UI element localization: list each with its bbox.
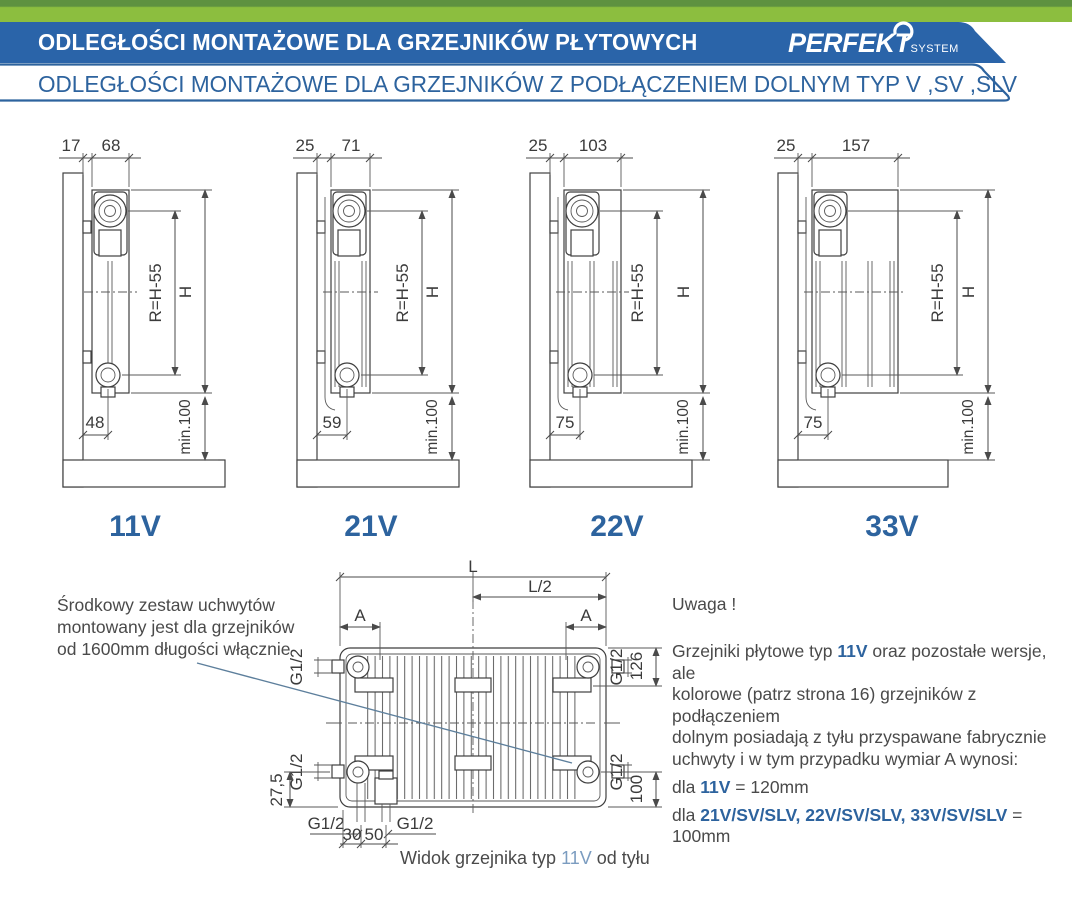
svg-text:25: 25 xyxy=(529,136,548,155)
radiator-21v xyxy=(323,190,378,410)
svg-text:min.100: min.100 xyxy=(675,399,692,455)
main-title-banner: ODLEGŁOŚCI MONTAŻOWE DLA GRZEJNIKÓW PŁYT… xyxy=(0,22,1020,63)
svg-text:min.100: min.100 xyxy=(177,399,194,455)
radiator-33v xyxy=(804,190,906,410)
svg-text:75: 75 xyxy=(804,413,823,432)
note-dim-a-others: dla 21V/SV/SLV, 22V/SV/SLV, 33V/SV/SLV =… xyxy=(672,805,1072,847)
note-left-line1: Środkowy zestaw uchwytów xyxy=(57,594,294,616)
svg-text:R=H-55: R=H-55 xyxy=(628,263,647,322)
type-label-21v: 21V xyxy=(316,510,426,544)
note-heading: Uwaga ! xyxy=(672,594,1072,615)
type-label-22v: 22V xyxy=(562,510,672,544)
svg-text:25: 25 xyxy=(296,136,315,155)
note-left-line2: montowany jest dla grzejników xyxy=(57,616,294,638)
note-dim-a-11v: dla 11V = 120mm xyxy=(672,777,1072,798)
svg-text:103: 103 xyxy=(579,136,607,155)
catalog-page: { "header": { "title": "ODLEGŁOŚCI MONTA… xyxy=(0,0,1072,898)
rear-body xyxy=(326,600,624,822)
svg-text:G1/2: G1/2 xyxy=(397,814,434,833)
diagram-11v: 17 68 H R=H-55 min.100 48 xyxy=(33,135,263,535)
page-title: ODLEGŁOŚCI MONTAŻOWE DLA GRZEJNIKÓW PŁYT… xyxy=(38,29,698,56)
brand-logo: PERFEKTSYSTEM xyxy=(788,28,959,59)
rear-view-drawing: L L/2 A A G1/2 G1/2 27,5 G1/2 126 G1/2 1… xyxy=(268,560,688,876)
svg-text:27,5: 27,5 xyxy=(268,773,286,806)
svg-text:71: 71 xyxy=(342,136,361,155)
diagram-22v: 25 103 H R=H-55 min.100 75 xyxy=(500,135,755,535)
svg-text:157: 157 xyxy=(842,136,870,155)
svg-text:H: H xyxy=(423,286,442,298)
svg-text:R=H-55: R=H-55 xyxy=(393,263,412,322)
svg-text:A: A xyxy=(354,606,366,625)
type-label-33v: 33V xyxy=(837,510,947,544)
svg-text:min.100: min.100 xyxy=(424,399,441,455)
wall-11v xyxy=(63,173,225,487)
svg-text:59: 59 xyxy=(323,413,342,432)
note-paragraph-line4: uchwyty i w tym przypadku wymiar A wynos… xyxy=(672,749,1072,771)
svg-text:50: 50 xyxy=(365,825,384,844)
dims-21v: 25 71 H R=H-55 min.100 59 xyxy=(293,136,459,460)
svg-text:30: 30 xyxy=(343,825,362,844)
svg-text:100: 100 xyxy=(627,775,646,803)
brand-sub: SYSTEM xyxy=(911,43,959,55)
svg-text:H: H xyxy=(959,286,978,298)
note-left-line3: od 1600mm długości włącznie xyxy=(57,638,294,660)
note-paragraph-line2: kolorowe (patrz strona 16) grzejników z … xyxy=(672,684,1072,727)
svg-text:L: L xyxy=(468,560,477,576)
svg-text:126: 126 xyxy=(627,652,646,680)
svg-text:H: H xyxy=(176,286,195,298)
diagram-33v: 25 157 H R=H-55 min.100 75 xyxy=(748,135,1038,535)
svg-text:75: 75 xyxy=(556,413,575,432)
svg-text:R=H-55: R=H-55 xyxy=(146,263,165,322)
page-subtitle: ODLEGŁOŚCI MONTAŻOWE DLA GRZEJNIKÓW Z PO… xyxy=(38,71,1017,98)
svg-text:68: 68 xyxy=(102,136,121,155)
note-paragraph-line1: Grzejniki płytowe typ 11V oraz pozostałe… xyxy=(672,641,1072,684)
radiator-11v xyxy=(84,190,137,397)
brand-swoosh-icon xyxy=(891,19,915,43)
svg-text:H: H xyxy=(674,286,693,298)
radiator-22v xyxy=(556,190,629,410)
note-uwaga: Uwaga ! Grzejniki płytowe typ 11V oraz p… xyxy=(672,594,1072,847)
note-paragraph-line3: dolnym posiadają z tyłu przyspawane fabr… xyxy=(672,727,1072,749)
note-center-brackets: Środkowy zestaw uchwytów montowany jest … xyxy=(57,594,294,660)
rear-view-caption: Widok grzejnika typ 11V od tyłu xyxy=(400,848,650,868)
svg-text:17: 17 xyxy=(62,136,81,155)
type-label-11v: 11V xyxy=(80,510,190,544)
svg-text:A: A xyxy=(580,606,592,625)
svg-text:L/2: L/2 xyxy=(528,577,552,596)
type-11v-inline: 11V xyxy=(837,641,867,661)
svg-text:25: 25 xyxy=(777,136,796,155)
svg-text:48: 48 xyxy=(86,413,105,432)
svg-text:min.100: min.100 xyxy=(960,399,977,455)
svg-text:R=H-55: R=H-55 xyxy=(928,263,947,322)
diagram-21v: 25 71 H R=H-55 min.100 59 xyxy=(267,135,507,535)
svg-text:G1/2: G1/2 xyxy=(607,649,626,686)
subtitle-banner: ODLEGŁOŚCI MONTAŻOWE DLA GRZEJNIKÓW Z PO… xyxy=(0,63,1030,103)
svg-text:G1/2: G1/2 xyxy=(308,814,345,833)
